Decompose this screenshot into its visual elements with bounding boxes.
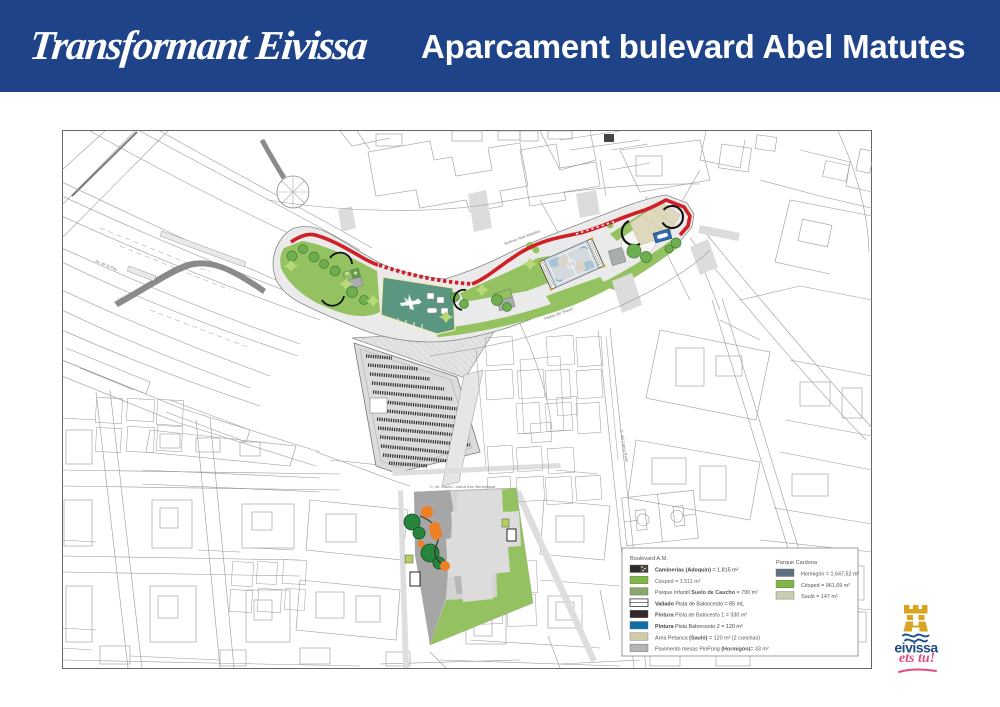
svg-text:Pavimento mesas PinPong (Hormi: Pavimento mesas PinPong (Hormigón)= 33 m… bbox=[655, 647, 769, 653]
svg-text:Hormigón = 1.647,52 m²: Hormigón = 1.647,52 m² bbox=[801, 572, 859, 578]
svg-text:Area Petanca (Sauló) = 120 m²: Area Petanca (Sauló) = 120 m² (2 canchas… bbox=[655, 635, 760, 641]
svg-text:Parque Infantil Suelo de Cauch: Parque Infantil Suelo de Caucho = 790 m² bbox=[655, 590, 758, 596]
svg-text:Boulevard A.M.: Boulevard A.M. bbox=[630, 556, 668, 562]
svg-text:Pintura Pista Baloncesto 2 = 1: Pintura Pista Baloncesto 2 = 120 m² bbox=[655, 624, 743, 630]
svg-text:C. de Juana / Joana d'en Benim: C. de Juana / Joana d'en Benimussa bbox=[430, 484, 496, 489]
svg-text:Sauló = 147 m²: Sauló = 147 m² bbox=[801, 594, 838, 600]
svg-text:Parque Cardona: Parque Cardona bbox=[776, 560, 818, 566]
svg-text:Césped = 1.511 m²: Césped = 1.511 m² bbox=[655, 579, 701, 585]
svg-text:Césped = 961,69 m²: Césped = 961,69 m² bbox=[801, 583, 850, 589]
svg-text:Caminerias (Adoquin) = 1.815 m: Caminerias (Adoquin) = 1.815 m² bbox=[655, 568, 739, 574]
svg-text:Pintura Pista de Balocesto 1 =: Pintura Pista de Balocesto 1 = 330 m² bbox=[655, 613, 747, 619]
svg-text:Vallado Pista de Baloncesto =: Vallado Pista de Baloncesto = 85 mL bbox=[655, 601, 744, 607]
